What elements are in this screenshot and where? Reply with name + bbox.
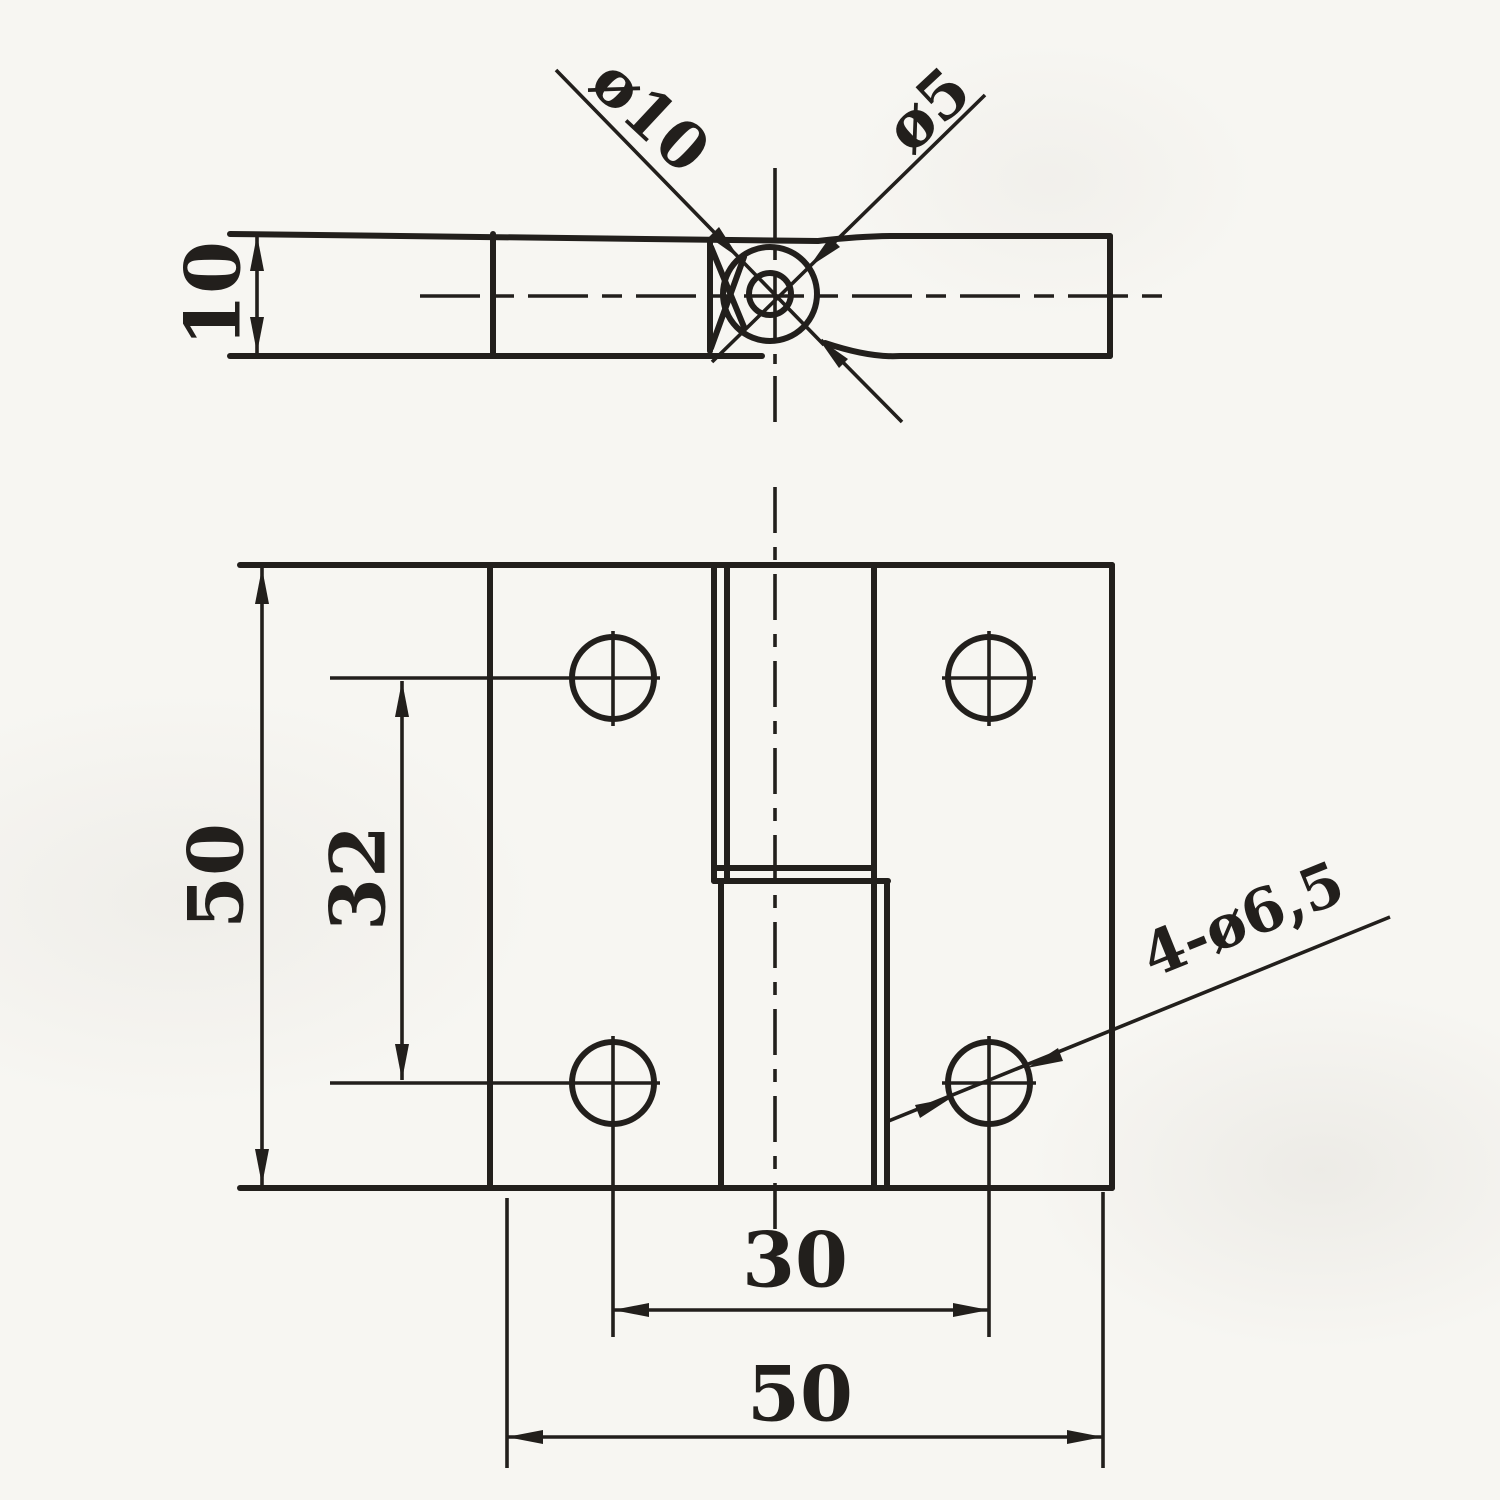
dim-30-label: 30 (742, 1216, 848, 1305)
dim-height-arrow-down (255, 1149, 269, 1185)
dim-width-arrow-right (1067, 1430, 1103, 1444)
dim-height-label: 50 (172, 823, 261, 929)
top-view-top-edge (230, 234, 1110, 241)
top-view (230, 168, 1175, 422)
hinge-technical-drawing: 10 ø10 ø5 50 32 4-ø6,5 30 (0, 0, 1500, 1500)
dim-holes-label: 4-ø6,5 (1132, 848, 1354, 992)
leader-holes (886, 917, 1390, 1122)
top-view-bottom-edge-right (825, 343, 1110, 356)
dim-width-arrow-left (507, 1430, 543, 1444)
dim-pin-diameter-label: ø5 (871, 53, 986, 167)
barrel-outer-circle (723, 247, 817, 341)
dim-width-label: 50 (747, 1350, 853, 1439)
leader-holes-arrow-right (1027, 1048, 1063, 1068)
dim-32-arrow-up (395, 681, 409, 717)
dim-30-arrow-left (613, 1303, 649, 1317)
dim-thickness-label: 10 (169, 241, 258, 347)
pin-hole-circle (749, 273, 791, 315)
dim-32-label: 32 (314, 825, 403, 931)
dim-barrel-diameter-label: ø10 (576, 44, 724, 189)
drawing-canvas: 10 ø10 ø5 50 32 4-ø6,5 30 (0, 0, 1500, 1500)
dim-32-arrow-down (395, 1044, 409, 1080)
dim-30-arrow-right (953, 1303, 989, 1317)
dim-height-arrow-up (255, 568, 269, 604)
dimensions: 10 ø10 ø5 50 32 4-ø6,5 30 (169, 44, 1391, 1468)
